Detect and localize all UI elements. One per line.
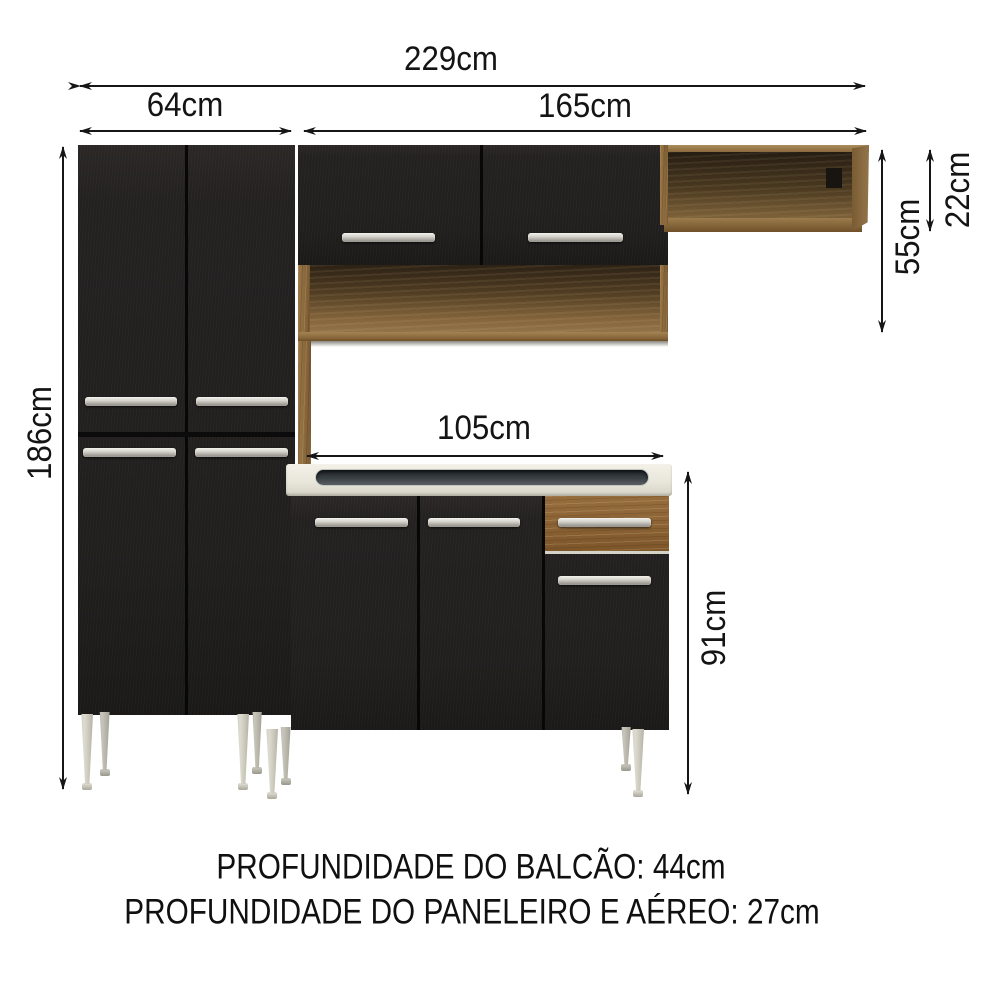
kitchen-set-dimension-diagram: 229cm 64cm 165cm 105cm 186cm 55cm 22cm 9… (0, 0, 1000, 1000)
dimension-arrows (0, 0, 1000, 1000)
